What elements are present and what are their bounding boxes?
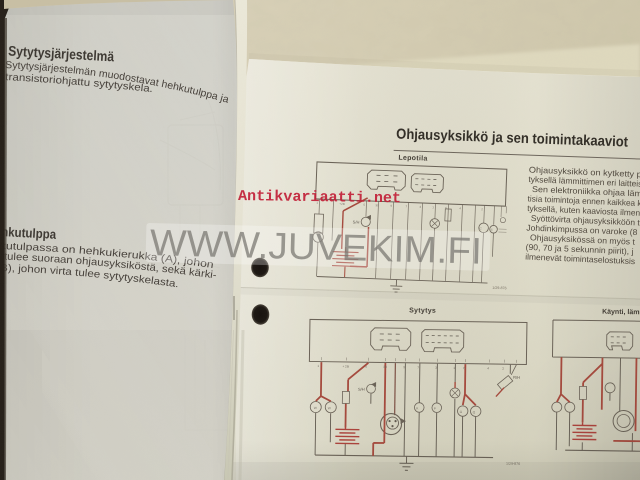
svg-text:Antikvariaatti.net: Antikvariaatti.net: [238, 188, 401, 207]
svg-text:WWW.JUVEKIM.FI: WWW.JUVEKIM.FI: [149, 222, 482, 272]
